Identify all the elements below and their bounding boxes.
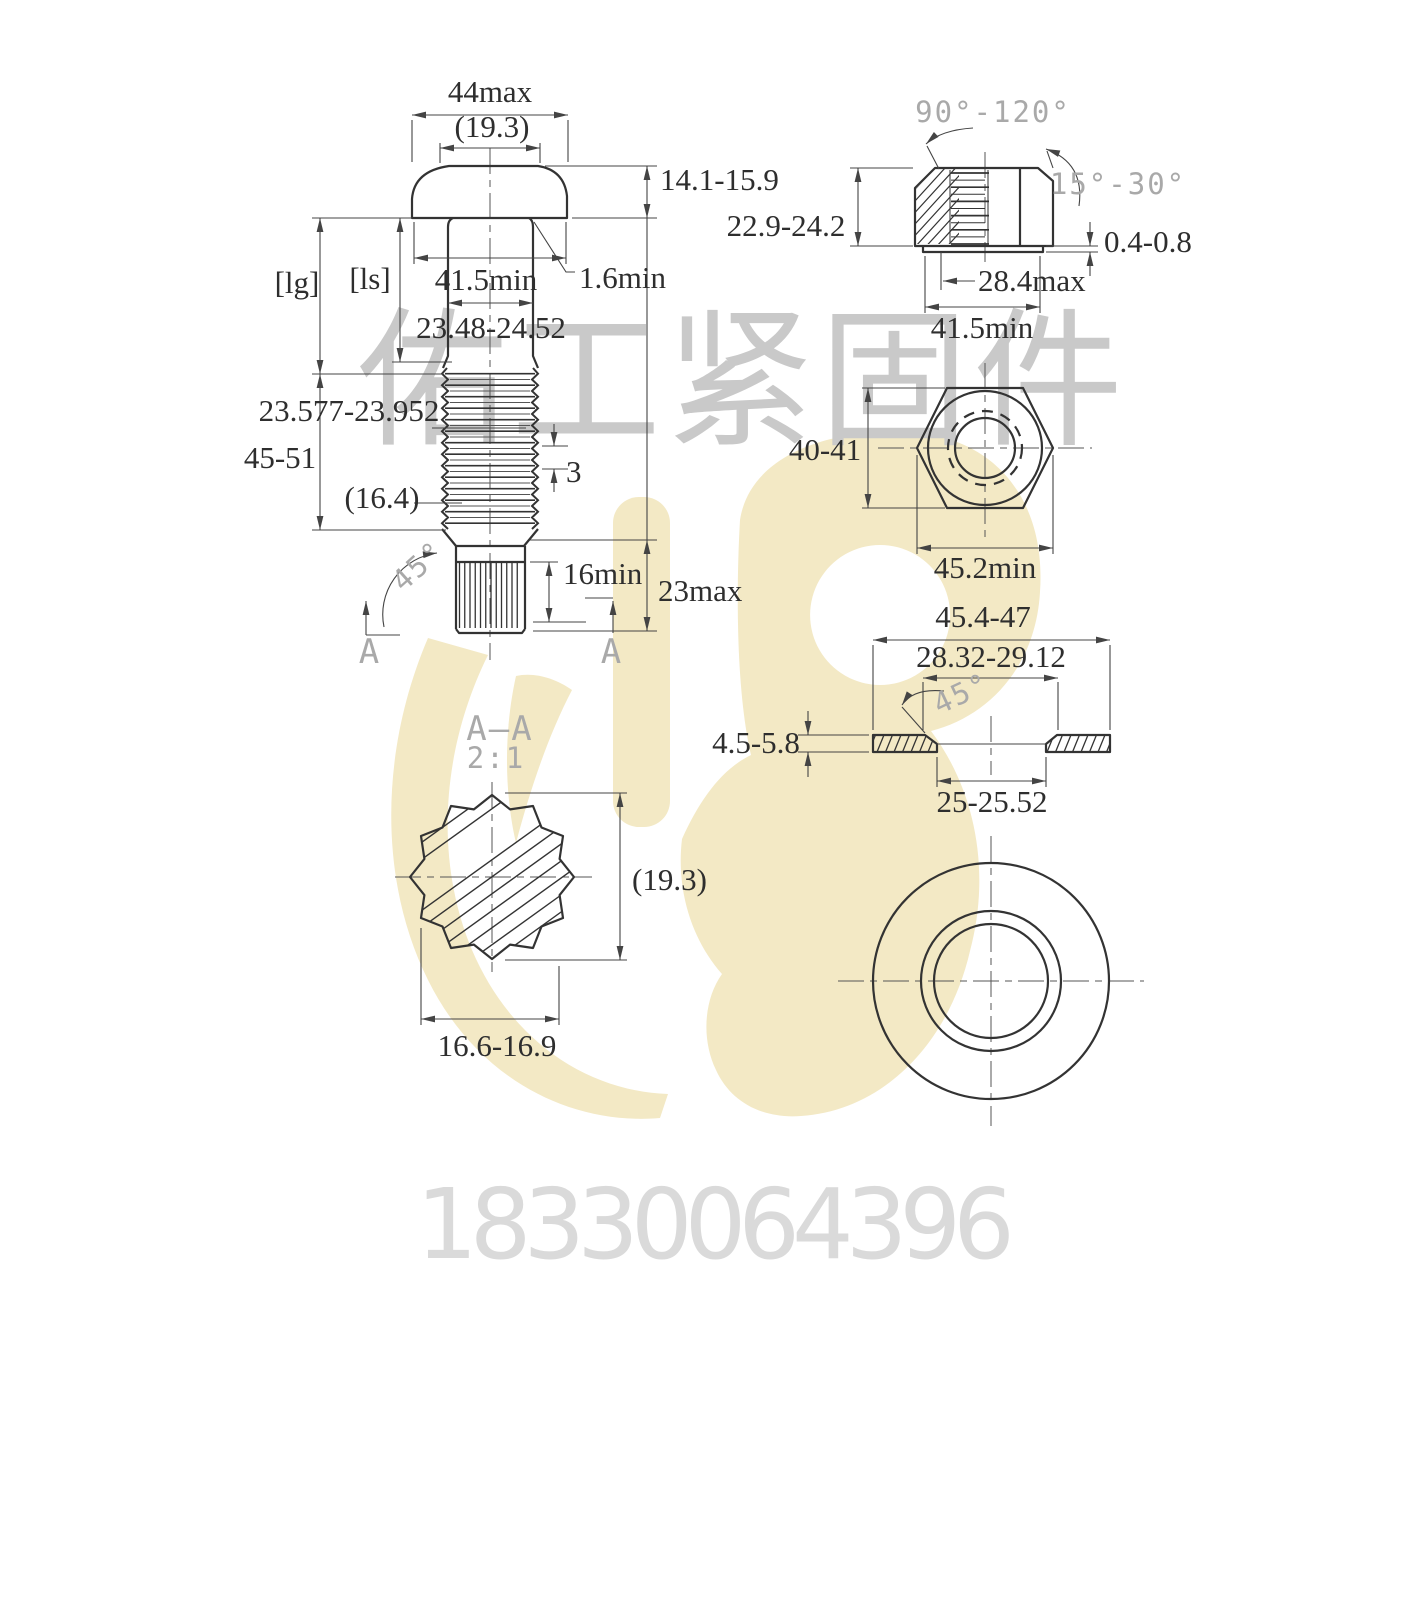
dim-spline-dia-ref: (19.3) bbox=[632, 862, 707, 897]
label-grip-length: [lg] bbox=[275, 265, 320, 300]
logo-watermark bbox=[391, 432, 1040, 1119]
dim-nut-chamfer-angle: 15°-30° bbox=[1050, 167, 1186, 201]
watermark-phone: 18330064396 bbox=[416, 1168, 1009, 1281]
dim-nut-bearing-face-dia: 41.5min bbox=[931, 310, 1034, 345]
dim-end-length: 23max bbox=[658, 573, 743, 608]
dim-washer-chamfer-dia: 28.32-29.12 bbox=[916, 639, 1066, 674]
dim-nut-across-flats: 40-41 bbox=[789, 432, 861, 467]
dim-nut-countersink-angle: 90°-120° bbox=[915, 95, 1071, 129]
nut-hatching bbox=[858, 162, 1056, 252]
dim-nut-height: 22.9-24.2 bbox=[727, 208, 846, 243]
nut-thread-lines bbox=[951, 173, 989, 244]
dim-washer-bore-dia: 25-25.52 bbox=[936, 784, 1047, 819]
dim-thread-runout-ref: (16.4) bbox=[345, 480, 420, 515]
drawing-canvas: 佑工紧固件 bbox=[0, 0, 1416, 1600]
dim-bearing-face-dia: 41.5min bbox=[435, 262, 538, 297]
engineering-drawing: 佑工紧固件 bbox=[0, 0, 1416, 1600]
dim-washer-thickness: 4.5-5.8 bbox=[712, 725, 800, 760]
dim-shank-dia: 23.48-24.52 bbox=[416, 310, 566, 345]
dim-nut-bore-dia: 28.4max bbox=[978, 263, 1086, 298]
dim-fillet-radius: 1.6min bbox=[579, 260, 666, 295]
section-letter-right: A bbox=[601, 632, 623, 672]
logo-main-blob bbox=[681, 432, 1041, 1117]
dim-spline-length: 16min bbox=[563, 556, 643, 591]
section-view-scale: 2:1 bbox=[467, 741, 525, 775]
dim-spline-across-flats: 16.6-16.9 bbox=[438, 1028, 557, 1063]
dim-nut-across-corners: 45.2min bbox=[934, 550, 1037, 585]
dim-nut-washer-face-height: 0.4-0.8 bbox=[1104, 224, 1192, 259]
dim-thread-pitch: 3 bbox=[566, 454, 582, 489]
dim-head-ref-width: (19.3) bbox=[455, 109, 530, 144]
dim-bolt-chamfer-angle: 45° bbox=[385, 534, 451, 598]
section-letter-left: A bbox=[359, 632, 381, 672]
bolt-spline-knurl-lines bbox=[460, 563, 518, 628]
dim-thread-length: 45-51 bbox=[244, 440, 316, 475]
dim-washer-outer-dia: 45.4-47 bbox=[935, 599, 1031, 634]
dim-head-width: 44max bbox=[448, 74, 533, 109]
label-shank-length: [ls] bbox=[349, 261, 390, 296]
dim-thread-dia: 23.577-23.952 bbox=[259, 393, 440, 428]
dim-head-height: 14.1-15.9 bbox=[660, 162, 779, 197]
